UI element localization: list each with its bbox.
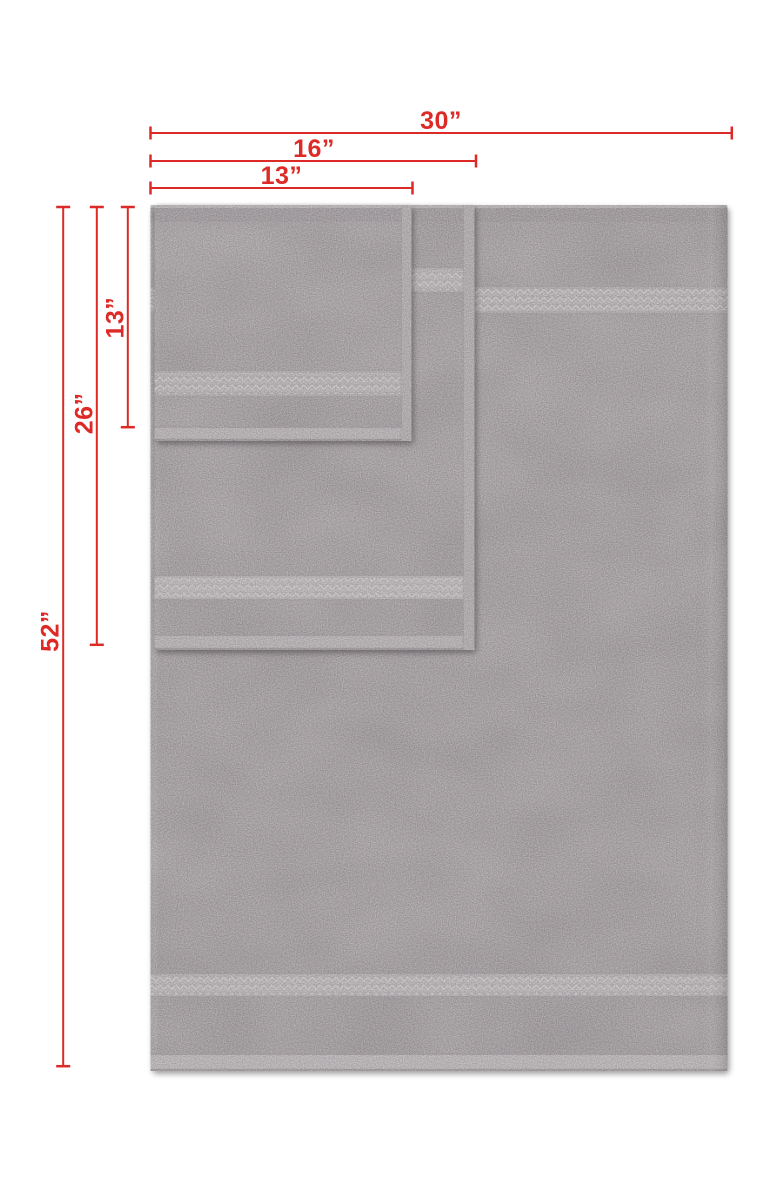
svg-text:13”: 13”: [102, 297, 130, 339]
svg-text:52”: 52”: [36, 610, 64, 652]
svg-text:26”: 26”: [71, 392, 99, 434]
svg-text:16”: 16”: [293, 135, 335, 163]
svg-text:13”: 13”: [261, 162, 303, 190]
svg-text:30”: 30”: [420, 107, 462, 135]
